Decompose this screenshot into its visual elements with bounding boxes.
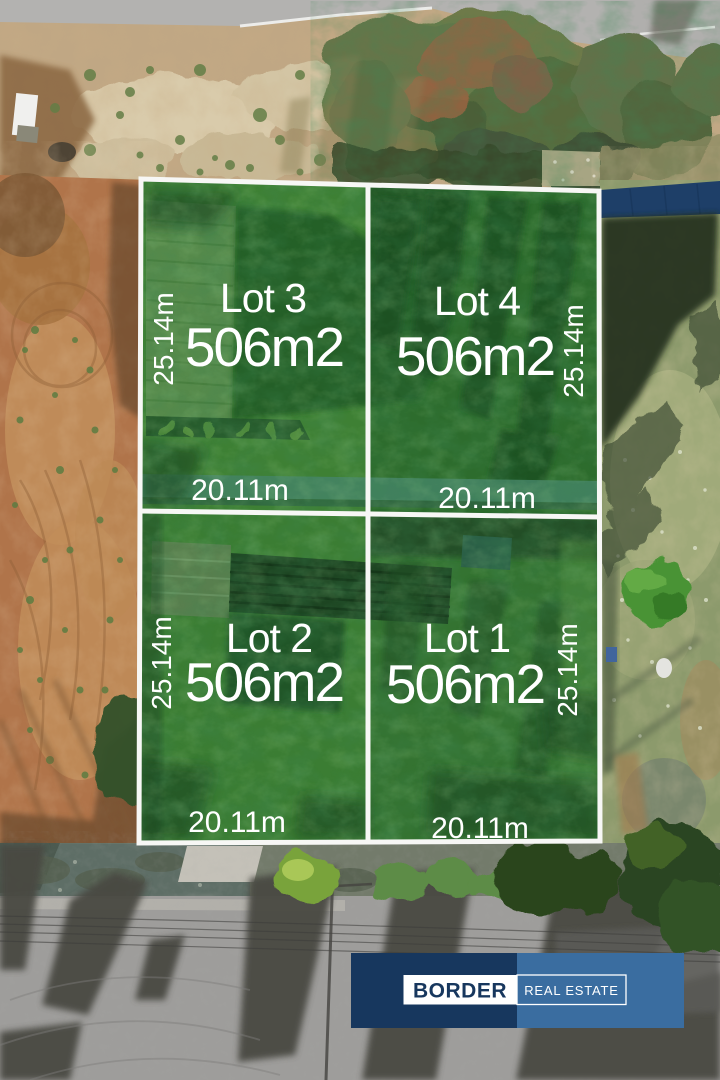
svg-text:506m2: 506m2 — [185, 651, 343, 713]
svg-text:506m2: 506m2 — [386, 653, 544, 715]
svg-text:20.11m: 20.11m — [431, 812, 529, 845]
svg-text:506m2: 506m2 — [396, 325, 554, 387]
svg-text:20.11m: 20.11m — [438, 482, 536, 515]
svg-text:Lot 4: Lot 4 — [434, 278, 520, 324]
svg-text:20.11m: 20.11m — [188, 806, 286, 839]
svg-text:20.11m: 20.11m — [191, 474, 289, 507]
svg-text:Lot 3: Lot 3 — [220, 275, 306, 321]
svg-text:25.14m: 25.14m — [148, 292, 179, 385]
svg-text:506m2: 506m2 — [185, 316, 343, 378]
svg-text:REAL ESTATE: REAL ESTATE — [524, 983, 619, 998]
svg-text:25.14m: 25.14m — [146, 616, 177, 709]
svg-text:25.14m: 25.14m — [558, 304, 589, 397]
svg-text:BORDER: BORDER — [413, 980, 507, 1003]
svg-text:25.14m: 25.14m — [552, 623, 583, 716]
